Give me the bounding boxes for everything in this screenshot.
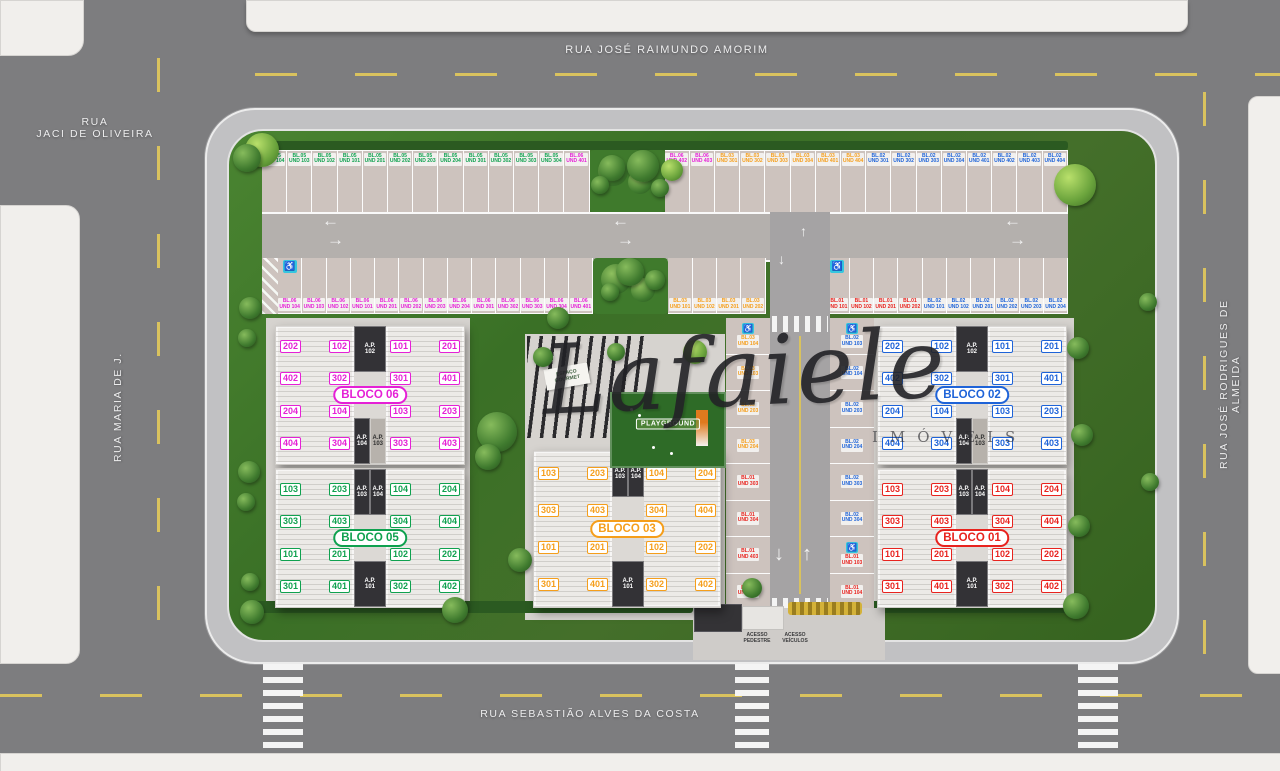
parking-stall-label: BL.06UND 102 bbox=[327, 298, 350, 311]
unit-label: 103 bbox=[538, 467, 559, 480]
parking-stall-label: BL.05UND 202 bbox=[389, 153, 412, 166]
tree-icon bbox=[508, 548, 532, 572]
lane-divider bbox=[1203, 92, 1206, 684]
unit-row: 104204 bbox=[642, 467, 720, 480]
arrow-left-icon: ← bbox=[322, 212, 339, 229]
arrow-up-icon: ↑ bbox=[802, 544, 812, 564]
unit-label: 104 bbox=[992, 483, 1013, 496]
parking-stall: BL.02UND 302 bbox=[891, 150, 916, 212]
parking-stall-label: BL.05UND 203 bbox=[414, 153, 437, 166]
parking-stall: BL.01UND 304 bbox=[726, 501, 770, 538]
parking-stall: BL.05UND 101 bbox=[338, 150, 363, 212]
vehicle-access-label: ACESSO VEÍCULOS bbox=[767, 632, 823, 644]
unit-label: 201 bbox=[587, 541, 608, 554]
unit-row: 103203 bbox=[534, 467, 612, 480]
unit-label: 403 bbox=[329, 515, 350, 528]
parking-stall-label: BL.06UND 103 bbox=[303, 298, 326, 311]
unit-row: 104204 bbox=[386, 483, 464, 496]
unit-label: 303 bbox=[538, 504, 559, 517]
flower-hedge bbox=[788, 602, 862, 615]
parking-stall: BL.01UND 303 bbox=[726, 464, 770, 501]
parking-stall: BL.05UND 102 bbox=[312, 150, 337, 212]
parking-stall: BL.02UND 204 bbox=[830, 428, 874, 465]
unit-label: 401 bbox=[931, 580, 952, 593]
arrow-down-icon: ↓ bbox=[778, 252, 785, 266]
hedge-north bbox=[262, 141, 1068, 150]
unit-row: 102202 bbox=[642, 541, 720, 554]
stair-core: A.P.101 bbox=[956, 561, 988, 607]
parking-stall: BL.03UND 302 bbox=[740, 150, 765, 212]
parking-stall: BL.06UND 403 bbox=[690, 150, 715, 212]
tree-icon bbox=[591, 176, 609, 194]
no-parking-hatch bbox=[262, 258, 278, 314]
tree-icon bbox=[1071, 424, 1093, 446]
parking-stall: BL.06UND 203 bbox=[424, 258, 448, 314]
stair-cores-top: A.P.103A.P.104 bbox=[956, 469, 988, 515]
unit-label: 101 bbox=[390, 340, 411, 353]
parking-stall: BL.03UND 304 bbox=[791, 150, 816, 212]
site-plan: RUA JOSÉ RAIMUNDO AMORIM RUA JACI DE OLI… bbox=[0, 0, 1280, 771]
tree-icon bbox=[661, 159, 683, 181]
arrow-left-icon: ← bbox=[612, 212, 629, 229]
unit-row: 302402 bbox=[642, 578, 720, 591]
tree-icon bbox=[601, 283, 619, 301]
unit-label: 302 bbox=[646, 578, 667, 591]
unit-label: 203 bbox=[931, 483, 952, 496]
tree-icon bbox=[238, 461, 260, 483]
unit-label: 204 bbox=[439, 483, 460, 496]
street-name-left: RUA MARIA DE J. bbox=[112, 322, 124, 492]
unit-label: 304 bbox=[646, 504, 667, 517]
tree-icon bbox=[475, 444, 501, 470]
parking-stall-label: BL.03UND 101 bbox=[669, 298, 692, 311]
parking-stall-label: BL.06UND 302 bbox=[497, 298, 520, 311]
unit-row: 102202 bbox=[988, 548, 1066, 561]
parking-stall: BL.06UND 303 bbox=[521, 258, 545, 314]
parking-stall: BL.02UND 101 bbox=[923, 258, 947, 314]
parking-stall-label: BL.05UND 303 bbox=[515, 153, 538, 166]
parking-stall-label: BL.06UND 301 bbox=[472, 298, 495, 311]
parking-stall: BL.03UND 202 bbox=[741, 258, 765, 314]
unit-label: 203 bbox=[329, 483, 350, 496]
building-b01: 1032033034031012013014011042043044041022… bbox=[877, 468, 1067, 608]
unit-label: 201 bbox=[1041, 340, 1062, 353]
unit-row: 302402 bbox=[386, 580, 464, 593]
stair-cores-bottom: A.P.101 bbox=[612, 561, 644, 607]
unit-label: 401 bbox=[587, 578, 608, 591]
unit-row: 402302 bbox=[276, 372, 354, 385]
unit-label: 102 bbox=[646, 541, 667, 554]
brand-watermark: Lafaiele bbox=[540, 307, 949, 437]
parking-stall-label: BL.06UND 101 bbox=[351, 298, 374, 311]
parking-stall: BL.06UND 101 bbox=[351, 258, 375, 314]
unit-label: 301 bbox=[280, 580, 301, 593]
parking-stall-label: BL.06UND 401 bbox=[565, 153, 588, 166]
unit-label: 203 bbox=[1041, 405, 1062, 418]
tree-icon bbox=[1141, 473, 1159, 491]
parking-stall: BL.01UND 201 bbox=[874, 258, 898, 314]
parking-stall-label: BL.02UND 402 bbox=[993, 153, 1016, 166]
unit-row: 304404 bbox=[642, 504, 720, 517]
unit-row: 304404 bbox=[386, 515, 464, 528]
unit-row: 301401 bbox=[386, 372, 464, 385]
unit-label: 204 bbox=[1041, 483, 1062, 496]
parking-stall: BL.01UND 102 bbox=[850, 258, 874, 314]
parking-stall: BL.02UND 204 bbox=[1044, 258, 1068, 314]
bloco-badge: BLOCO 03 bbox=[590, 520, 664, 538]
unit-row: 303403 bbox=[534, 504, 612, 517]
unit-label: 103 bbox=[992, 405, 1013, 418]
unit-label: 303 bbox=[280, 515, 301, 528]
unit-label: 102 bbox=[992, 548, 1013, 561]
parking-stall: BL.02UND 402 bbox=[992, 150, 1017, 212]
unit-label: 201 bbox=[931, 548, 952, 561]
arrow-right-icon: → bbox=[617, 231, 634, 248]
wheelchair-icon: ♿ bbox=[283, 260, 297, 273]
parking-stall: BL.05UND 301 bbox=[464, 150, 489, 212]
unit-row: 301401 bbox=[878, 580, 956, 593]
parking-stall-label: BL.02UND 401 bbox=[968, 153, 991, 166]
unit-row: 303403 bbox=[878, 515, 956, 528]
unit-label: 304 bbox=[329, 437, 350, 450]
unit-label: 202 bbox=[439, 548, 460, 561]
unit-label: 402 bbox=[695, 578, 716, 591]
unit-label: 204 bbox=[695, 467, 716, 480]
parking-stall-label: BL.06UND 104 bbox=[278, 298, 301, 311]
parking-stall-label: BL.02UND 302 bbox=[892, 153, 915, 166]
unit-row: 101201 bbox=[988, 340, 1066, 353]
arrow-down-icon: ↓ bbox=[774, 544, 784, 564]
tree-icon bbox=[645, 270, 665, 290]
parking-stall: ♿BL.01UND 103 bbox=[830, 537, 874, 574]
parking-stall-label: BL.05UND 201 bbox=[364, 153, 387, 166]
parking-stall: BL.03UND 401 bbox=[816, 150, 841, 212]
arrow-left-icon: ← bbox=[1004, 212, 1021, 229]
parking-stall: BL.05UND 204 bbox=[438, 150, 463, 212]
block-east bbox=[1248, 96, 1280, 674]
parking-row-second: ♿BL.06UND 104BL.06UND 103BL.06UND 102BL.… bbox=[262, 258, 1068, 314]
parking-stall-label: BL.03UND 102 bbox=[693, 298, 716, 311]
parking-stall-label: BL.01UND 103 bbox=[841, 554, 864, 567]
tree-icon bbox=[1063, 593, 1089, 619]
unit-label: 401 bbox=[1041, 372, 1062, 385]
brand-watermark-subtitle: IMÓVEIS bbox=[872, 428, 1027, 446]
unit-row: 104204 bbox=[988, 483, 1066, 496]
tree-icon bbox=[241, 573, 259, 591]
parking-stall: BL.05UND 203 bbox=[413, 150, 438, 212]
parking-stall: BL.02UND 303 bbox=[917, 150, 942, 212]
parking-stall: BL.02UND 304 bbox=[942, 150, 967, 212]
unit-row: 301401 bbox=[276, 580, 354, 593]
parking-stall-label: BL.02UND 404 bbox=[1044, 153, 1067, 166]
parking-stall-label: BL.02UND 403 bbox=[1018, 153, 1041, 166]
parking-stall: BL.03UND 303 bbox=[765, 150, 790, 212]
tree-icon bbox=[1068, 515, 1090, 537]
unit-row: 301401 bbox=[534, 578, 612, 591]
parking-stall-label: BL.01UND 303 bbox=[737, 475, 760, 488]
unit-row: 103203 bbox=[386, 405, 464, 418]
parking-stall-label: BL.03UND 302 bbox=[741, 153, 764, 166]
stair-core: A.P.103 bbox=[354, 469, 370, 515]
lane-divider bbox=[157, 58, 160, 658]
unit-label: 402 bbox=[439, 580, 460, 593]
parking-stall: BL.05UND 303 bbox=[514, 150, 539, 212]
parking-stall: BL.02UND 203 bbox=[1020, 258, 1044, 314]
building-b05: 1032033034031012013014011042043044041022… bbox=[275, 468, 465, 608]
parking-stall-label: BL.02UND 203 bbox=[1020, 298, 1043, 311]
unit-row: 303403 bbox=[276, 515, 354, 528]
parking-stall: ♿BL.06UND 104 bbox=[278, 258, 302, 314]
unit-row: 204104 bbox=[276, 405, 354, 418]
parking-stall: BL.06UND 302 bbox=[496, 258, 520, 314]
unit-row: 301401 bbox=[988, 372, 1066, 385]
tree-icon bbox=[240, 600, 264, 624]
stair-core: A.P.103 bbox=[370, 418, 386, 464]
unit-label: 301 bbox=[390, 372, 411, 385]
unit-label: 102 bbox=[329, 340, 350, 353]
parking-stall-label: BL.05UND 304 bbox=[540, 153, 563, 166]
stair-core: A.P.104 bbox=[354, 418, 370, 464]
parking-stall: BL.05UND 304 bbox=[539, 150, 564, 212]
wheelchair-icon: ♿ bbox=[846, 542, 858, 553]
unit-label: 402 bbox=[1041, 580, 1062, 593]
arrow-up-icon: ↑ bbox=[800, 224, 807, 238]
parking-stall: BL.06UND 204 bbox=[448, 258, 472, 314]
unit-label: 201 bbox=[329, 548, 350, 561]
unit-label: 404 bbox=[280, 437, 301, 450]
unit-label: 403 bbox=[931, 515, 952, 528]
tree-icon bbox=[616, 258, 644, 286]
parking-stall-label: BL.06UND 403 bbox=[691, 153, 714, 166]
unit-row: 103203 bbox=[878, 483, 956, 496]
parking-stall: BL.06UND 304 bbox=[545, 258, 569, 314]
parking-stall-label: BL.02UND 204 bbox=[841, 439, 864, 452]
parking-stall-label: BL.06UND 201 bbox=[375, 298, 398, 311]
parking-stall: BL.06UND 401 bbox=[564, 150, 589, 212]
parking-stall-label: BL.02UND 301 bbox=[867, 153, 890, 166]
unit-row: 303403 bbox=[386, 437, 464, 450]
parking-stall-label: BL.06UND 401 bbox=[570, 298, 593, 311]
parking-stall: BL.03UND 101 bbox=[668, 258, 692, 314]
unit-label: 403 bbox=[587, 504, 608, 517]
unit-label: 203 bbox=[587, 467, 608, 480]
unit-label: 302 bbox=[992, 580, 1013, 593]
tree-icon bbox=[627, 150, 659, 182]
unit-label: 202 bbox=[280, 340, 301, 353]
parking-stall: BL.06UND 202 bbox=[399, 258, 423, 314]
parking-stall-label: BL.06UND 203 bbox=[424, 298, 447, 311]
unit-label: 202 bbox=[1041, 548, 1062, 561]
parking-stall-label: BL.05UND 102 bbox=[313, 153, 336, 166]
unit-label: 302 bbox=[329, 372, 350, 385]
unit-label: 103 bbox=[882, 483, 903, 496]
tree-icon bbox=[238, 329, 256, 347]
unit-label: 301 bbox=[992, 372, 1013, 385]
parking-stall: BL.02UND 201 bbox=[971, 258, 995, 314]
wheelchair-icon: ♿ bbox=[830, 260, 844, 273]
unit-label: 303 bbox=[882, 515, 903, 528]
parking-stall-label: BL.05UND 302 bbox=[490, 153, 513, 166]
parking-stall: BL.03UND 102 bbox=[693, 258, 717, 314]
parking-stall-label: BL.02UND 102 bbox=[947, 298, 970, 311]
parking-stall-label: BL.03UND 404 bbox=[842, 153, 865, 166]
unit-label: 404 bbox=[695, 504, 716, 517]
street-name-right: RUA JOSÉ RODRIGUES DE ALMEIDA bbox=[1218, 275, 1242, 493]
stair-core: A.P.103 bbox=[956, 469, 972, 515]
parking-stall: BL.02UND 303 bbox=[830, 464, 874, 501]
tree-icon bbox=[233, 144, 261, 172]
parking-stall-label: BL.06UND 204 bbox=[448, 298, 471, 311]
tree-icon bbox=[239, 297, 261, 319]
unit-label: 103 bbox=[280, 483, 301, 496]
arrow-right-icon: → bbox=[1009, 231, 1026, 248]
stair-core: A.P.102 bbox=[956, 326, 988, 372]
unit-label: 102 bbox=[390, 548, 411, 561]
unit-row: 103203 bbox=[988, 405, 1066, 418]
parking-stall-label: BL.01UND 102 bbox=[850, 298, 873, 311]
parking-stall: BL.03UND 404 bbox=[841, 150, 866, 212]
tree-icon bbox=[1139, 293, 1157, 311]
unit-row: 101201 bbox=[386, 340, 464, 353]
building-b06: 2021024023022041044043041012013014011032… bbox=[275, 325, 465, 465]
unit-label: 402 bbox=[280, 372, 301, 385]
block-top-left bbox=[0, 0, 84, 56]
parking-stall-label: BL.02UND 303 bbox=[841, 475, 864, 488]
stair-cores-bottom: A.P.101 bbox=[354, 561, 386, 607]
tree-icon bbox=[442, 597, 468, 623]
unit-row: 302402 bbox=[988, 580, 1066, 593]
block-west bbox=[0, 205, 80, 664]
parking-stall-label: BL.03UND 202 bbox=[742, 298, 765, 311]
unit-label: 101 bbox=[538, 541, 559, 554]
tree-icon bbox=[651, 179, 669, 197]
parking-stall-label: BL.05UND 204 bbox=[439, 153, 462, 166]
unit-label: 404 bbox=[1041, 515, 1062, 528]
parking-stall: BL.03UND 204 bbox=[726, 428, 770, 465]
bloco-badge: BLOCO 01 bbox=[935, 529, 1009, 547]
unit-row: 202102 bbox=[276, 340, 354, 353]
parking-stall-label: BL.03UND 204 bbox=[737, 439, 760, 452]
parking-stall: BL.06UND 301 bbox=[472, 258, 496, 314]
parking-stall: BL.02UND 401 bbox=[967, 150, 992, 212]
stair-core: A.P.104 bbox=[370, 469, 386, 515]
building-b03: 1032033034031012013014011042043044041022… bbox=[533, 450, 721, 608]
parking-stall-label: BL.03UND 304 bbox=[791, 153, 814, 166]
parking-stall-label: BL.02UND 304 bbox=[943, 153, 966, 166]
block-north bbox=[246, 0, 1188, 32]
unit-label: 404 bbox=[439, 515, 460, 528]
guardhouse bbox=[694, 604, 742, 632]
stair-cores-bottom: A.P.101 bbox=[956, 561, 988, 607]
unit-label: 303 bbox=[390, 437, 411, 450]
crosswalk bbox=[735, 664, 769, 750]
parking-stall-label: BL.02UND 303 bbox=[917, 153, 940, 166]
parking-stall-label: BL.05UND 103 bbox=[288, 153, 311, 166]
stair-cores-top: A.P.102 bbox=[956, 326, 988, 372]
crosswalk bbox=[1078, 664, 1118, 750]
stair-core: A.P.102 bbox=[354, 326, 386, 372]
bloco-badge: BLOCO 05 bbox=[333, 529, 407, 547]
unit-label: 401 bbox=[329, 580, 350, 593]
parking-stall-label: BL.02UND 202 bbox=[996, 298, 1019, 311]
tree-icon bbox=[1067, 337, 1089, 359]
unit-row: 404304 bbox=[276, 437, 354, 450]
parking-stall-label: BL.06UND 303 bbox=[521, 298, 544, 311]
parking-stall-label: BL.01UND 403 bbox=[737, 548, 760, 561]
parking-stall: BL.01UND 202 bbox=[898, 258, 922, 314]
unit-label: 304 bbox=[992, 515, 1013, 528]
parking-stall-label: BL.02UND 304 bbox=[841, 512, 864, 525]
parking-stall: BL.06UND 103 bbox=[302, 258, 326, 314]
unit-row: 102202 bbox=[386, 548, 464, 561]
parking-stall-label: BL.02UND 204 bbox=[1044, 298, 1067, 311]
unit-label: 103 bbox=[390, 405, 411, 418]
parking-stall-label: BL.02UND 201 bbox=[971, 298, 994, 311]
unit-label: 403 bbox=[1041, 437, 1062, 450]
parking-stall: BL.02UND 301 bbox=[866, 150, 891, 212]
crosswalk bbox=[263, 664, 303, 750]
parking-stall: BL.02UND 102 bbox=[947, 258, 971, 314]
unit-label: 204 bbox=[280, 405, 301, 418]
street-name-top: RUA JOSÉ RAIMUNDO AMORIM bbox=[477, 44, 857, 56]
unit-row: 101201 bbox=[878, 548, 956, 561]
parking-stall: BL.02UND 403 bbox=[1017, 150, 1042, 212]
parking-stall-label: BL.03UND 301 bbox=[716, 153, 739, 166]
unit-row: 101201 bbox=[534, 541, 612, 554]
stair-cores-bottom: A.P.104A.P.103 bbox=[354, 418, 386, 464]
parking-stall: BL.06UND 201 bbox=[375, 258, 399, 314]
stair-core: A.P.101 bbox=[612, 561, 644, 607]
stair-cores-top: A.P.103A.P.104 bbox=[354, 469, 386, 515]
stair-cores-top: A.P.102 bbox=[354, 326, 386, 372]
parking-stall: BL.02UND 304 bbox=[830, 501, 874, 538]
parking-stall-label: BL.05UND 301 bbox=[464, 153, 487, 166]
parking-stall: BL.05UND 202 bbox=[388, 150, 413, 212]
parking-stall-label: BL.06UND 202 bbox=[400, 298, 423, 311]
street-name-left-corner: RUA JACI DE OLIVEIRA bbox=[25, 116, 165, 140]
unit-label: 403 bbox=[439, 437, 460, 450]
gate-canopy bbox=[742, 606, 784, 630]
unit-row: 101201 bbox=[276, 548, 354, 561]
parking-stall-label: BL.01UND 304 bbox=[737, 512, 760, 525]
parking-stall: BL.05UND 201 bbox=[363, 150, 388, 212]
parking-stall: BL.05UND 302 bbox=[489, 150, 514, 212]
unit-label: 101 bbox=[882, 548, 903, 561]
tree-icon bbox=[237, 493, 255, 511]
parking-stall: BL.02UND 202 bbox=[995, 258, 1019, 314]
parking-stall: BL.06UND 401 bbox=[569, 258, 593, 314]
parking-stall: BL.01UND 403 bbox=[726, 537, 770, 574]
parking-stall-label: BL.03UND 201 bbox=[717, 298, 740, 311]
unit-label: 302 bbox=[390, 580, 411, 593]
tree-icon bbox=[742, 578, 762, 598]
unit-label: 401 bbox=[439, 372, 460, 385]
unit-row: 103203 bbox=[276, 483, 354, 496]
unit-label: 202 bbox=[695, 541, 716, 554]
unit-label: 201 bbox=[439, 340, 460, 353]
parking-stall-label: BL.03UND 401 bbox=[817, 153, 840, 166]
unit-row: 304404 bbox=[988, 515, 1066, 528]
unit-label: 104 bbox=[329, 405, 350, 418]
parking-stall: BL.03UND 201 bbox=[717, 258, 741, 314]
arrow-right-icon: → bbox=[327, 231, 344, 248]
parking-stall-label: BL.01UND 104 bbox=[841, 585, 864, 598]
unit-label: 301 bbox=[882, 580, 903, 593]
parking-stall-label: BL.03UND 303 bbox=[766, 153, 789, 166]
lane-divider bbox=[255, 73, 1280, 76]
stair-core: A.P.101 bbox=[354, 561, 386, 607]
drive-aisle bbox=[262, 212, 1068, 262]
